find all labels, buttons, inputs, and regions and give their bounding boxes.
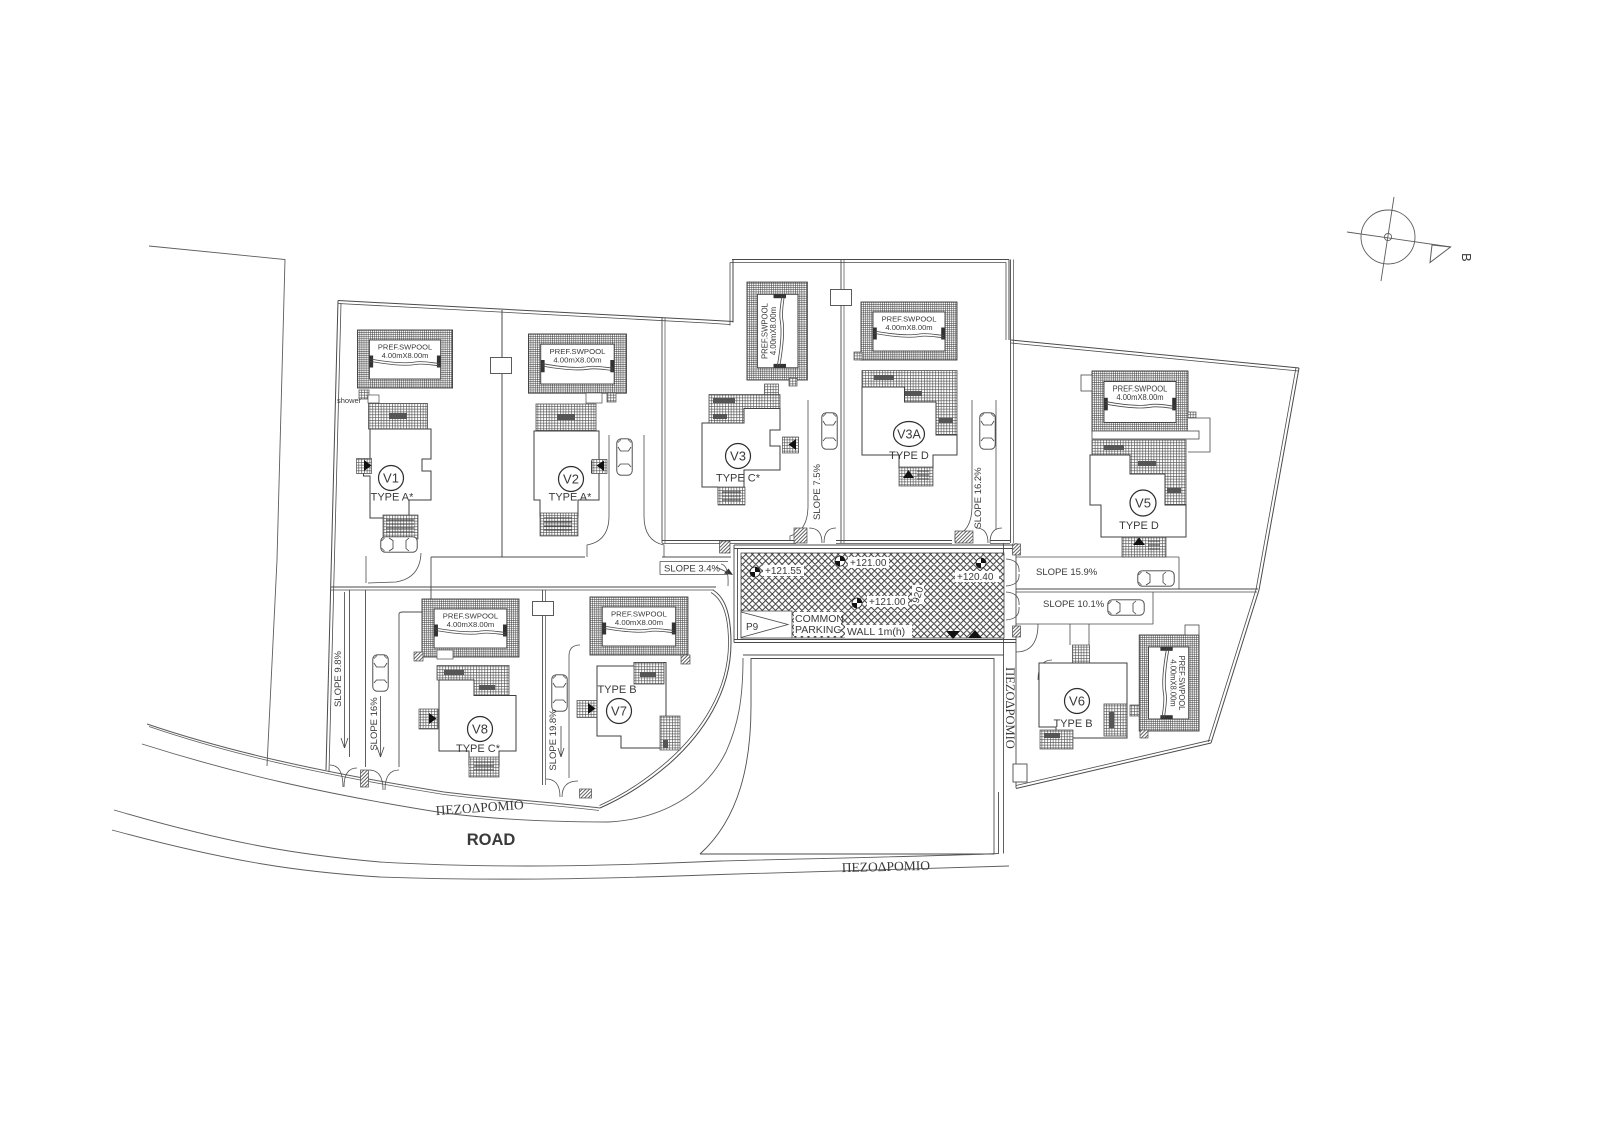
svg-text:SLOPE 10.1%: SLOPE 10.1% <box>1043 599 1105 610</box>
svg-text:ΠΕΖOΔΡOΜΙO: ΠΕΖOΔΡOΜΙO <box>842 858 931 875</box>
svg-text:WALL 1m(h): WALL 1m(h) <box>847 626 905 638</box>
svg-text:V3: V3 <box>730 449 746 464</box>
svg-text:TYPE B: TYPE B <box>597 684 636 696</box>
svg-text:TYPE D: TYPE D <box>1119 520 1159 532</box>
svg-text:+121.00: +121.00 <box>869 597 906 608</box>
svg-text:SLOPE 16%: SLOPE 16% <box>369 697 380 751</box>
svg-text:SLOPE 3.4%: SLOPE 3.4% <box>664 564 721 575</box>
svg-text:TYPE A*: TYPE A* <box>371 492 415 504</box>
svg-text:V3A: V3A <box>897 428 921 442</box>
svg-text:TYPE C*: TYPE C* <box>716 473 761 485</box>
svg-text:V7: V7 <box>611 704 627 719</box>
svg-text:ΠΕΖOΔΡOΜΙO: ΠΕΖOΔΡOΜΙO <box>1003 667 1017 749</box>
svg-text:SLOPE 15.9%: SLOPE 15.9% <box>1036 567 1098 578</box>
svg-text:V1: V1 <box>383 471 399 486</box>
svg-text:+121.00: +121.00 <box>850 558 887 569</box>
svg-text:PARKING: PARKING <box>795 624 841 636</box>
svg-text:TYPE D: TYPE D <box>889 450 929 462</box>
svg-text:V2: V2 <box>563 472 579 487</box>
svg-text:SLOPE 19.8%: SLOPE 19.8% <box>548 709 559 771</box>
svg-text:B: B <box>1459 253 1474 262</box>
svg-text:P9: P9 <box>746 622 759 633</box>
svg-text:+121.55: +121.55 <box>765 566 802 577</box>
svg-text:+120.40: +120.40 <box>957 572 994 583</box>
svg-text:TYPE A*: TYPE A* <box>549 492 593 504</box>
svg-text:ROAD: ROAD <box>467 831 516 849</box>
svg-text:V8: V8 <box>472 722 488 737</box>
svg-text:SLOPE 7.5%: SLOPE 7.5% <box>812 463 823 520</box>
svg-text:TYPE C*: TYPE C* <box>456 743 501 755</box>
svg-text:V5: V5 <box>1135 496 1151 511</box>
svg-text:SLOPE 16.2%: SLOPE 16.2% <box>973 467 984 529</box>
svg-text:TYPE B: TYPE B <box>1053 718 1092 730</box>
svg-text:shower: shower <box>337 396 362 405</box>
svg-text:SLOPE 9.8%: SLOPE 9.8% <box>333 650 344 707</box>
svg-text:V6: V6 <box>1069 694 1085 709</box>
